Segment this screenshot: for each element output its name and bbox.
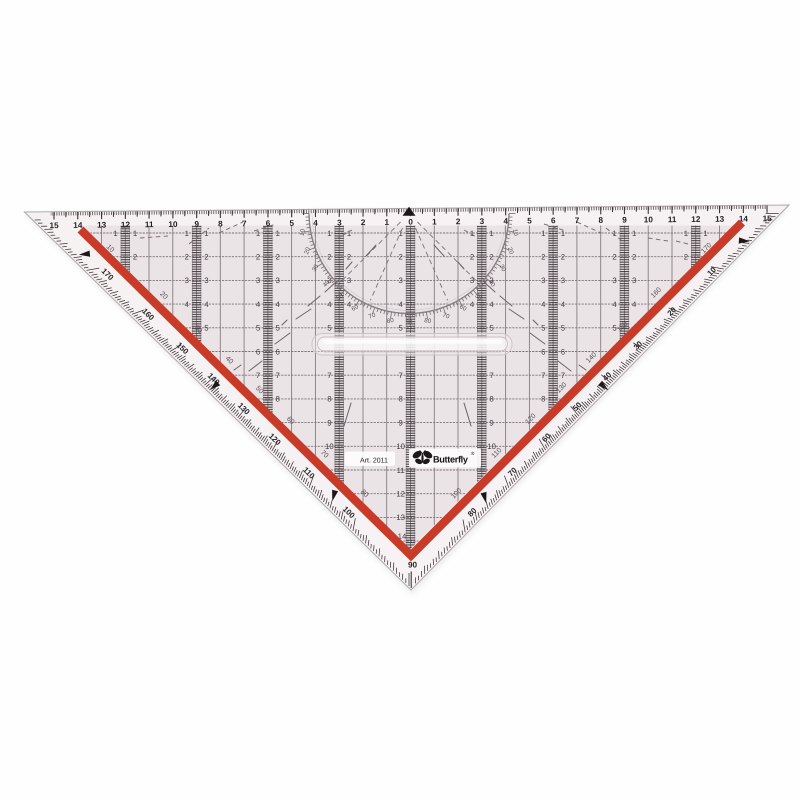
svg-text:10: 10 <box>168 220 178 229</box>
svg-text:12: 12 <box>396 490 405 499</box>
svg-text:2: 2 <box>204 253 208 262</box>
svg-text:4: 4 <box>489 300 494 309</box>
svg-text:13: 13 <box>396 513 405 522</box>
svg-text:7: 7 <box>489 371 493 380</box>
svg-text:6: 6 <box>551 216 556 225</box>
svg-text:8: 8 <box>327 395 331 404</box>
svg-text:15: 15 <box>763 214 773 223</box>
svg-text:3: 3 <box>399 276 403 285</box>
svg-text:1: 1 <box>541 229 545 238</box>
svg-text:2: 2 <box>612 253 616 262</box>
svg-text:6: 6 <box>561 347 565 356</box>
svg-text:3: 3 <box>632 276 636 285</box>
svg-text:3: 3 <box>256 276 260 285</box>
svg-text:7: 7 <box>399 371 403 380</box>
svg-text:9: 9 <box>622 216 627 225</box>
svg-text:4: 4 <box>313 219 318 228</box>
svg-text:4: 4 <box>632 300 637 309</box>
svg-text:4: 4 <box>185 300 190 309</box>
svg-text:1: 1 <box>684 229 688 238</box>
svg-text:6: 6 <box>541 347 545 356</box>
svg-text:2: 2 <box>456 217 461 226</box>
svg-text:8: 8 <box>218 219 223 228</box>
svg-text:90: 90 <box>408 561 418 570</box>
svg-text:2: 2 <box>541 253 545 262</box>
svg-text:1: 1 <box>133 229 137 238</box>
svg-text:2: 2 <box>470 253 474 262</box>
svg-text:5: 5 <box>541 324 546 333</box>
svg-text:1: 1 <box>347 229 351 238</box>
svg-text:8: 8 <box>276 395 280 404</box>
svg-text:2: 2 <box>327 253 331 262</box>
svg-text:10: 10 <box>644 215 654 224</box>
svg-text:3: 3 <box>204 276 208 285</box>
svg-text:5: 5 <box>289 219 294 228</box>
svg-text:8: 8 <box>541 395 545 404</box>
svg-text:0: 0 <box>408 218 413 227</box>
svg-text:2: 2 <box>561 253 565 262</box>
svg-text:13: 13 <box>715 215 725 224</box>
svg-text:4: 4 <box>561 300 566 309</box>
svg-text:5: 5 <box>399 324 404 333</box>
svg-text:5: 5 <box>489 324 494 333</box>
svg-text:4: 4 <box>503 217 508 226</box>
svg-text:2: 2 <box>489 253 493 262</box>
svg-text:7: 7 <box>575 216 580 225</box>
svg-text:6: 6 <box>266 219 271 228</box>
svg-text:1: 1 <box>327 229 331 238</box>
svg-text:5: 5 <box>204 324 209 333</box>
svg-text:4: 4 <box>470 300 475 309</box>
svg-text:90: 90 <box>406 319 413 326</box>
svg-text:9: 9 <box>194 220 199 229</box>
svg-text:1: 1 <box>204 229 208 238</box>
svg-text:2: 2 <box>632 253 636 262</box>
svg-text:6: 6 <box>276 347 280 356</box>
svg-text:7: 7 <box>276 371 280 380</box>
svg-text:4: 4 <box>327 300 332 309</box>
svg-text:3: 3 <box>480 217 485 226</box>
svg-text:1: 1 <box>432 217 437 226</box>
svg-text:3: 3 <box>276 276 280 285</box>
svg-text:1: 1 <box>489 229 493 238</box>
svg-text:2: 2 <box>361 218 366 227</box>
svg-text:3: 3 <box>541 276 545 285</box>
svg-text:1: 1 <box>276 229 280 238</box>
svg-text:1: 1 <box>113 229 117 238</box>
svg-text:2: 2 <box>276 253 280 262</box>
svg-text:6: 6 <box>256 347 260 356</box>
svg-text:10: 10 <box>325 442 334 451</box>
svg-text:1: 1 <box>632 229 636 238</box>
svg-text:4: 4 <box>204 300 209 309</box>
svg-text:2: 2 <box>133 253 137 262</box>
svg-text:11: 11 <box>668 215 677 224</box>
svg-text:7: 7 <box>561 371 565 380</box>
svg-text:8: 8 <box>399 395 403 404</box>
svg-text:7: 7 <box>256 371 260 380</box>
svg-text:13: 13 <box>97 221 107 230</box>
svg-text:2: 2 <box>347 253 351 262</box>
svg-text:14: 14 <box>73 221 83 230</box>
svg-text:1: 1 <box>385 218 390 227</box>
svg-text:5: 5 <box>276 324 281 333</box>
svg-text:9: 9 <box>489 418 493 427</box>
svg-text:8: 8 <box>489 395 493 404</box>
svg-text:11: 11 <box>397 466 405 475</box>
svg-text:5: 5 <box>561 324 566 333</box>
svg-text:5: 5 <box>527 217 532 226</box>
svg-text:3: 3 <box>185 276 189 285</box>
svg-text:Butterfly: Butterfly <box>433 455 469 465</box>
svg-text:4: 4 <box>612 300 617 309</box>
svg-text:8: 8 <box>598 216 603 225</box>
svg-text:1: 1 <box>703 229 707 238</box>
svg-text:4: 4 <box>256 300 261 309</box>
svg-text:1: 1 <box>470 229 474 238</box>
svg-text:5: 5 <box>327 324 332 333</box>
svg-text:Art. 2011: Art. 2011 <box>360 458 388 465</box>
svg-text:9: 9 <box>399 418 403 427</box>
svg-text:4: 4 <box>541 300 546 309</box>
svg-text:3: 3 <box>337 218 342 227</box>
svg-text:3: 3 <box>612 276 616 285</box>
svg-text:11: 11 <box>145 220 154 229</box>
svg-text:10: 10 <box>396 442 405 451</box>
svg-text:9: 9 <box>327 418 331 427</box>
svg-text:1: 1 <box>185 229 189 238</box>
svg-text:12: 12 <box>691 215 701 224</box>
svg-text:3: 3 <box>347 276 351 285</box>
svg-text:2: 2 <box>256 253 260 262</box>
svg-text:4: 4 <box>399 300 404 309</box>
svg-text:7: 7 <box>541 371 545 380</box>
svg-text:3: 3 <box>561 276 565 285</box>
svg-text:7: 7 <box>327 371 331 380</box>
svg-text:12: 12 <box>121 220 131 229</box>
svg-text:2: 2 <box>684 253 688 262</box>
svg-text:4: 4 <box>276 300 281 309</box>
svg-text:7: 7 <box>242 219 247 228</box>
svg-text:5: 5 <box>256 324 261 333</box>
svg-text:2: 2 <box>399 253 403 262</box>
svg-text:2: 2 <box>185 253 189 262</box>
